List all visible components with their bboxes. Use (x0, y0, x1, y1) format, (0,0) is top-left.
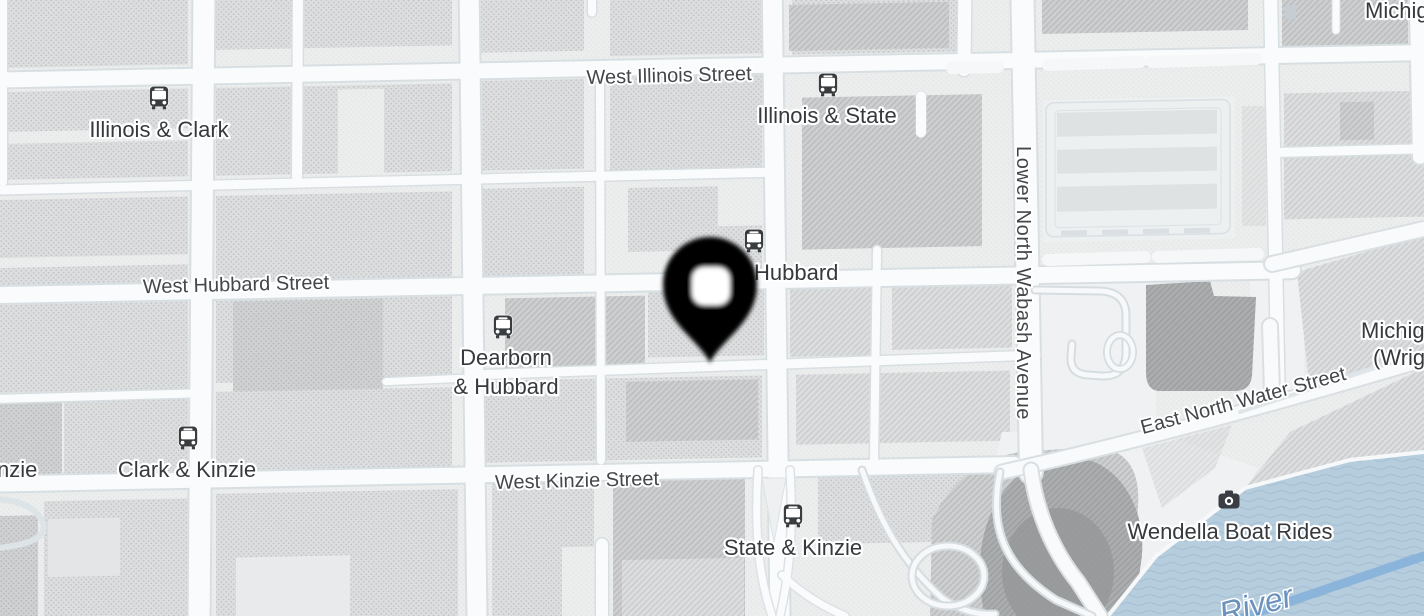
svg-text:Michig: Michig (1365, 0, 1424, 23)
svg-text:Illinois & State: Illinois & State (757, 103, 896, 128)
svg-text:& Hubbard: & Hubbard (453, 374, 558, 399)
svg-text:Dearborn: Dearborn (460, 345, 552, 370)
svg-text:Lower North Wabash Avenue: Lower North Wabash Avenue (1012, 146, 1034, 420)
svg-text:Wendella Boat Rides: Wendella Boat Rides (1127, 519, 1332, 544)
svg-text:West Illinois Street: West Illinois Street (586, 63, 752, 89)
svg-text:West Hubbard Street: West Hubbard Street (143, 272, 330, 299)
svg-text:nzie: nzie (0, 457, 37, 482)
svg-text:Illinois & Clark: Illinois & Clark (89, 117, 229, 142)
svg-text:(Wrig: (Wrig (1373, 345, 1424, 370)
svg-text:Clark & Kinzie: Clark & Kinzie (118, 457, 256, 482)
svg-text:State & Kinzie: State & Kinzie (724, 535, 862, 560)
svg-text:Michig: Michig (1361, 318, 1424, 343)
svg-text:Hubbard: Hubbard (754, 260, 838, 285)
svg-text:West Kinzie Street: West Kinzie Street (495, 468, 660, 494)
